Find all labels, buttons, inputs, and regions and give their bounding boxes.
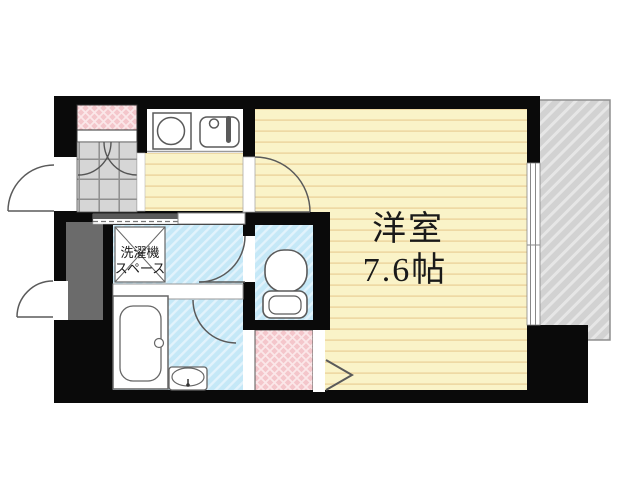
pipe-shaft-box — [66, 222, 103, 320]
main-room-size-label: 7.6帖 — [363, 251, 448, 289]
sink-faucet-base-icon — [210, 119, 219, 128]
bathroom-door-opening — [192, 285, 238, 298]
wall-top-left — [54, 96, 77, 157]
balcony-hatch-area — [539, 100, 610, 340]
stove-burner-icon — [158, 118, 185, 145]
toilet-bowl-icon — [265, 250, 307, 292]
washbasin-drain-dot — [186, 383, 190, 387]
laundry-label-line2: スペース — [115, 261, 165, 276]
toilet-room — [263, 250, 307, 318]
wall-east-top — [527, 96, 540, 163]
porch-tile — [77, 105, 137, 130]
floor-plan: 洗濯機 スペース 洋室 7.6帖 — [0, 0, 640, 480]
exterior-doors — [8, 165, 54, 317]
meter-box-door-opening — [54, 281, 68, 320]
wall-water-block-right — [313, 212, 330, 330]
sliding-door-panel — [178, 213, 245, 224]
window-frame — [527, 163, 540, 325]
bathtub-drain-icon — [155, 339, 164, 348]
entrance-door-opening — [54, 157, 72, 211]
wall-bottom — [54, 390, 527, 403]
genkan-step-strip — [137, 153, 145, 211]
wall-kitchen-right — [243, 96, 255, 157]
sliding-door-leaf — [93, 214, 180, 219]
wall-east-bottom-block — [527, 325, 588, 403]
balcony-window — [527, 163, 540, 325]
toilet-tank-inner — [269, 296, 301, 314]
balcony — [539, 100, 610, 340]
kitchen — [147, 109, 243, 152]
kitchen-hall-floor — [145, 153, 243, 211]
laundry-label-line1: 洗濯機 — [120, 245, 159, 260]
closet-tile-floor — [255, 330, 313, 392]
entrance-door-panel-strip — [77, 130, 137, 142]
meter-box-door-swing-arc — [17, 281, 53, 317]
entrance-door-swing-arc — [8, 165, 54, 211]
floor-plan-page: 洗濯機 スペース 洋室 7.6帖 — [0, 0, 640, 480]
genkan-tile-grid — [77, 142, 137, 212]
kitchen-sink-icon — [200, 117, 239, 147]
entrance-area — [77, 105, 145, 212]
sink-faucet-icon — [226, 116, 231, 143]
main-room-name-label: 洋室 — [372, 210, 444, 248]
closet-opening-strip — [313, 330, 325, 392]
room-door-opening — [243, 157, 255, 212]
